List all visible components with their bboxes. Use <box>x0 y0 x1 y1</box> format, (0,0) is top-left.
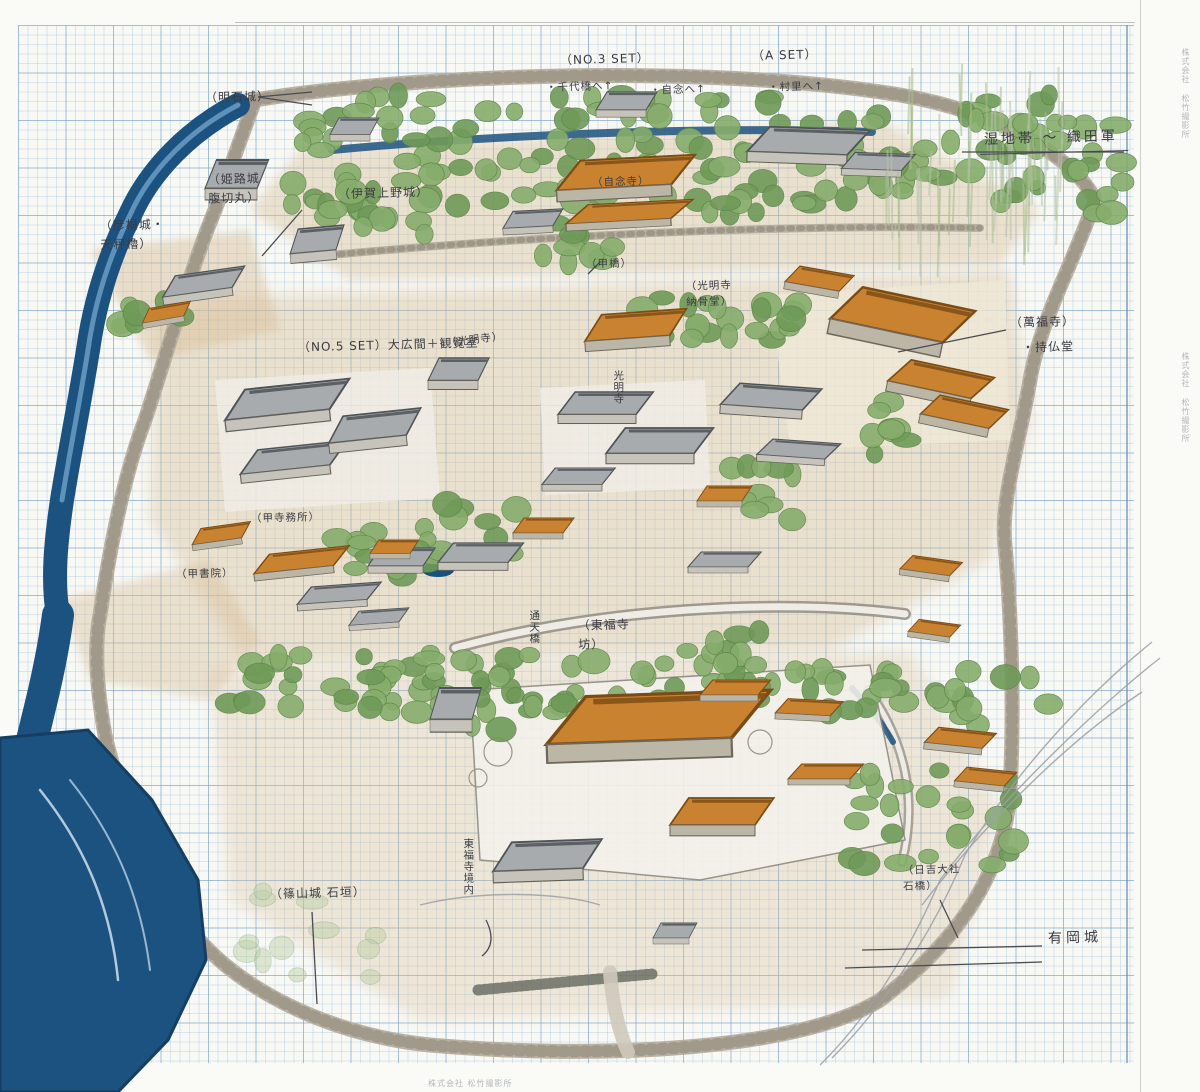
tree <box>449 159 473 175</box>
tree <box>416 92 446 107</box>
tree <box>416 224 434 244</box>
tree <box>891 183 913 199</box>
tree <box>425 663 444 680</box>
tree <box>497 148 522 170</box>
marsh-grass <box>920 179 921 277</box>
tree <box>488 667 510 687</box>
tree <box>745 322 769 339</box>
tree <box>1096 201 1127 225</box>
tree <box>708 157 740 177</box>
tree <box>280 171 306 196</box>
tree <box>495 647 524 669</box>
tree <box>289 968 306 982</box>
tree <box>655 656 674 671</box>
label-manpukuji-temple: （萬福寺） <box>1010 312 1075 332</box>
tree <box>348 535 376 549</box>
tree <box>999 829 1029 854</box>
tree <box>741 501 769 518</box>
tree <box>881 824 903 843</box>
tree <box>344 561 368 575</box>
marsh-grass <box>908 76 910 134</box>
tree <box>844 812 869 830</box>
marsh-grass <box>891 148 892 240</box>
tree <box>278 695 304 718</box>
tree <box>283 194 300 214</box>
label-hiyoshi-stonebridge: （日吉大社 石橋） <box>903 861 961 895</box>
tree <box>475 159 497 181</box>
tree <box>389 83 407 108</box>
label-ko-temple-office: （甲寺務所） <box>251 509 320 527</box>
tree <box>401 701 432 724</box>
label-tsutenkyo-bridge: 通天橋 <box>526 610 542 666</box>
tree <box>410 107 435 125</box>
tree <box>562 108 590 130</box>
tree <box>647 104 672 129</box>
tree <box>354 217 372 237</box>
tree <box>785 661 806 683</box>
tree <box>507 688 525 704</box>
tree <box>334 689 359 704</box>
label-komyoji-vertical: 光明寺 <box>610 370 626 432</box>
label-hikone-tenbinyagura: （彦根城・ 天秤櫓） <box>100 215 166 254</box>
tree <box>1041 85 1058 105</box>
tree <box>802 677 819 702</box>
tree <box>356 649 373 665</box>
tree <box>793 196 816 211</box>
tree <box>358 696 382 718</box>
tree <box>677 643 698 658</box>
tree <box>1034 694 1063 714</box>
tree <box>979 857 1006 873</box>
tree <box>506 103 523 120</box>
tree <box>511 187 536 203</box>
label-ko-bridge: （甲橋） <box>586 255 632 272</box>
tree <box>534 244 551 267</box>
tree <box>942 130 960 154</box>
marsh-grass <box>911 103 912 153</box>
tree <box>376 106 403 130</box>
label-arioka-castle: 有岡城 <box>1048 927 1103 950</box>
tree <box>402 133 430 148</box>
marsh-grass <box>898 172 899 237</box>
tree <box>870 678 902 698</box>
tree <box>394 153 421 169</box>
label-komyoji-ossuary: （光明寺 納骨堂） <box>686 277 733 311</box>
tree <box>474 101 501 122</box>
tree <box>706 631 724 655</box>
tree <box>475 514 501 530</box>
tree <box>752 298 771 322</box>
tree <box>294 133 311 152</box>
marsh-grass <box>1058 67 1059 116</box>
tree <box>234 691 265 714</box>
label-jibutsudo-hall: ・持仏堂 <box>1022 337 1074 357</box>
label-himeji-harakirimaru: （姫路城 腹切丸） <box>208 169 261 208</box>
tree <box>779 508 806 531</box>
tree <box>946 824 970 848</box>
tree <box>486 717 516 742</box>
tree <box>913 140 937 157</box>
marsh-grass <box>1000 87 1001 136</box>
label-iga-ueno-castle: （伊賀上野城） <box>338 183 429 204</box>
tree <box>990 665 1020 690</box>
marsh-grass <box>1023 170 1024 265</box>
tree <box>245 663 275 683</box>
tree <box>270 644 287 670</box>
label-a-set-item-murazato: ・村里へ↑ <box>768 78 824 96</box>
tree <box>445 194 469 217</box>
tree <box>520 157 540 172</box>
label-wetland-oda-army: 湿地帯 〜 織田軍 <box>980 126 1129 155</box>
tree <box>547 129 568 151</box>
label-ko-shoin: （甲書院） <box>176 565 234 583</box>
tree <box>777 306 806 332</box>
label-no3-set: （NO.3 SET） <box>560 49 650 70</box>
tree <box>451 650 477 671</box>
castle-building <box>330 118 379 141</box>
tree <box>433 491 462 517</box>
label-tofukuji-bo: （東福寺 坊） <box>578 615 631 654</box>
tree <box>681 329 704 347</box>
tree <box>888 779 913 794</box>
tree <box>745 657 767 674</box>
tree <box>861 114 884 130</box>
marsh-grass <box>961 64 962 109</box>
marsh-grass <box>995 107 996 203</box>
tree <box>380 703 400 721</box>
label-a-set: （A SET） <box>752 45 818 65</box>
label-no3-item-jinen: ・自念へ↑ <box>650 81 706 99</box>
label-akashi-castle: （明石城） <box>205 87 270 107</box>
tree <box>815 180 838 201</box>
tree <box>713 652 737 674</box>
tree <box>369 207 395 232</box>
marsh-grass <box>949 189 950 236</box>
margin-print-right-mid: 株式会社 松竹撮影所 <box>1180 352 1191 444</box>
tree <box>631 661 655 685</box>
tree <box>878 420 905 440</box>
marsh-grass <box>1044 148 1046 222</box>
tree <box>880 794 899 817</box>
tree <box>825 672 843 696</box>
tree <box>1106 153 1137 172</box>
marsh-grass <box>970 93 971 168</box>
margin-print-right-top: 株式会社 松竹撮影所 <box>1180 48 1191 140</box>
tree <box>849 851 880 875</box>
tree <box>357 669 385 684</box>
tree <box>343 103 375 120</box>
tree <box>269 936 294 960</box>
tree <box>565 138 595 160</box>
label-jinenji-temple: （自念寺） <box>592 173 650 191</box>
tree <box>930 763 949 778</box>
tree <box>860 763 880 786</box>
tree <box>600 238 624 257</box>
tree <box>749 621 769 644</box>
tree <box>255 948 272 972</box>
tree <box>481 192 509 210</box>
margin-print-bottom: 株式会社 松竹撮影所 <box>428 1078 513 1089</box>
tree <box>284 667 302 683</box>
tree <box>1111 173 1134 191</box>
marsh-grass <box>1031 152 1032 205</box>
temple-building <box>907 618 960 644</box>
tree <box>947 797 971 812</box>
label-no3-item-chiyobashi: ・千代橋へ↑ <box>546 78 614 96</box>
tree <box>524 695 542 717</box>
map-drawing <box>0 0 1200 1092</box>
tree <box>1020 666 1039 689</box>
tree <box>710 196 740 211</box>
tree <box>1068 160 1089 180</box>
tree <box>308 142 335 158</box>
tree <box>720 324 737 349</box>
label-tofukuji-grounds: 東福寺境内 <box>460 838 476 930</box>
label-sasayama-stonewall: （篠山城 石垣） <box>270 883 366 904</box>
marsh-grass <box>1002 151 1003 206</box>
tree <box>763 185 784 207</box>
tree <box>413 651 445 667</box>
tree <box>868 402 891 418</box>
tree <box>916 786 940 808</box>
map-sheet: （明石城） （NO.3 SET） ・千代橋へ↑ ・自念へ↑ （A SET） ・村… <box>0 0 1200 1092</box>
tree <box>361 970 381 985</box>
tree <box>358 939 380 959</box>
tree <box>453 120 479 138</box>
tree <box>945 678 966 701</box>
tree <box>239 935 259 949</box>
tree <box>616 128 635 153</box>
tree <box>714 116 740 140</box>
